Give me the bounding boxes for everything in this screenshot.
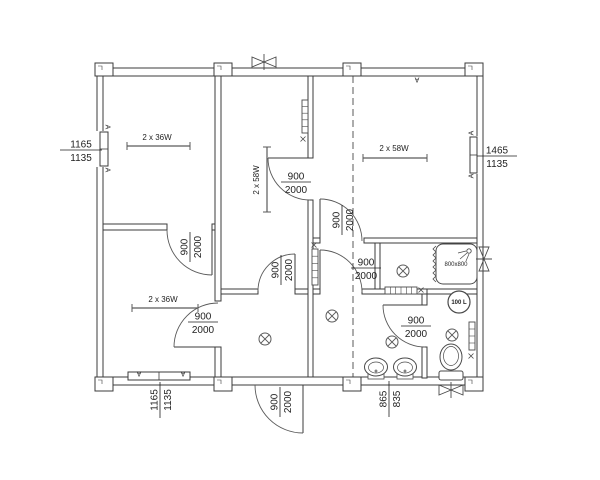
- door-size-label-numerator: 900: [271, 261, 282, 278]
- door-size-label-numerator: 900: [180, 238, 191, 255]
- exterior-wall: [97, 68, 483, 76]
- marker: A: [104, 168, 111, 173]
- corner-post: [95, 377, 113, 391]
- door-size-label-denominator: 2000: [283, 390, 294, 413]
- door-size-label-numerator: 900: [332, 211, 343, 228]
- door-size-label-denominator: 2000: [284, 258, 295, 281]
- ceiling-light-cross: [448, 331, 456, 339]
- dimension-label-numerator: 1465: [486, 146, 509, 157]
- windows: [96, 131, 478, 384]
- dimension-label: 865835: [379, 381, 404, 417]
- light-label: 2 x 58W: [252, 165, 261, 195]
- marker: A: [414, 76, 419, 83]
- interior-wall: [422, 294, 427, 305]
- door-size-label-numerator: 900: [288, 172, 305, 183]
- shower-head-icon: [467, 249, 471, 253]
- toilet-tank: [439, 371, 463, 380]
- ceiling-light-cross: [399, 267, 407, 275]
- corner-post: [465, 63, 483, 76]
- light-label-text: 2 x 36W: [148, 295, 178, 304]
- marker-letter: A: [136, 370, 141, 377]
- marker: A: [469, 173, 476, 178]
- marker-letter: A: [180, 370, 185, 377]
- door-size-label-numerator: 900: [358, 258, 375, 269]
- door-size-label: 9002000: [271, 255, 296, 285]
- door-size-label: 9002000: [281, 172, 311, 197]
- boiler-volume-label: 100 L: [451, 300, 467, 306]
- marker-letter: A: [469, 130, 476, 135]
- valve-mark-icon: [469, 354, 474, 359]
- ceiling-light-cross: [328, 312, 336, 320]
- interior-wall: [364, 238, 477, 243]
- light-label: 2 x 36W: [142, 133, 172, 142]
- shower-size-label: 800x800: [444, 262, 468, 268]
- door-size-label-numerator: 900: [195, 312, 212, 323]
- light-label-text: 2 x 36W: [142, 133, 172, 142]
- door-size-label: 9002000: [401, 316, 431, 341]
- marker-letter: A: [104, 168, 111, 173]
- interior-wall: [422, 347, 427, 378]
- door-size-label-numerator: 900: [408, 316, 425, 327]
- door-size-label-denominator: 2000: [285, 185, 308, 196]
- interior-wall: [103, 224, 167, 230]
- radiator: [312, 249, 318, 285]
- interior-wall: [215, 347, 221, 378]
- door-size-label-denominator: 2000: [405, 329, 428, 340]
- corner-post: [214, 377, 232, 391]
- corner-post: [95, 63, 113, 76]
- interior-wall: [313, 289, 320, 294]
- door-size-label-denominator: 2000: [192, 325, 215, 336]
- exterior-wall: [477, 68, 483, 385]
- interior-wall: [313, 238, 320, 243]
- interior-wall: [308, 76, 313, 158]
- radiator: [302, 100, 308, 133]
- ceiling-light-cross: [261, 335, 269, 343]
- door-size-label: 9002000: [188, 312, 218, 337]
- marker: A: [180, 370, 185, 377]
- door-size-label-numerator: 900: [270, 393, 281, 410]
- corner-post: [214, 63, 232, 76]
- marker: A: [469, 130, 476, 135]
- dimension-label-denominator: 1135: [163, 389, 174, 411]
- shower-curtain-zigzag: [433, 246, 436, 282]
- door-size-label: 9002000: [332, 205, 357, 235]
- light-label-text: 2 x 58W: [252, 165, 261, 195]
- corner-post: [343, 377, 361, 391]
- marker: A: [136, 370, 141, 377]
- corner-post: [465, 377, 483, 391]
- marker: A: [104, 125, 111, 130]
- light-label-text: 2 x 58W: [379, 144, 409, 153]
- walls: [95, 63, 483, 391]
- marker-letter: A: [104, 125, 111, 130]
- floor-plan-page: 9002000900200090020009002000900200090020…: [0, 0, 600, 480]
- interior-wall: [375, 243, 380, 292]
- ceiling-light-cross: [388, 338, 396, 346]
- interior-wall: [295, 289, 308, 294]
- light-label: 2 x 58W: [379, 144, 409, 153]
- marker-letter: A: [414, 76, 419, 83]
- corner-post: [343, 63, 361, 76]
- interior-wall: [215, 76, 221, 301]
- interior-wall: [212, 224, 215, 230]
- dimension-label-denominator: 1135: [486, 159, 508, 170]
- dimension-label: 11651135: [60, 140, 102, 165]
- interior-wall: [308, 200, 313, 377]
- dimension-label-numerator: 1165: [70, 140, 92, 151]
- dimension-label-denominator: 1135: [70, 153, 92, 164]
- door-size-label: 9002000: [180, 232, 205, 262]
- dimension-label-denominator: 835: [392, 390, 403, 407]
- dimension-label-numerator: 865: [379, 390, 390, 407]
- door-size-label-denominator: 2000: [355, 271, 378, 282]
- marker-letter: A: [469, 173, 476, 178]
- door-size-label-denominator: 2000: [193, 235, 204, 258]
- exterior-wall: [97, 68, 103, 385]
- dimension-label-numerator: 1165: [150, 389, 161, 411]
- light-label: 2 x 36W: [148, 295, 178, 304]
- interior-wall: [221, 289, 258, 294]
- valve-mark-icon: [301, 137, 306, 142]
- dimension-label: 11651135: [150, 382, 175, 418]
- floor-plan-svg: 9002000900200090020009002000900200090020…: [0, 0, 600, 480]
- door-size-label: 9002000: [270, 387, 295, 417]
- door-size-label-denominator: 2000: [345, 208, 356, 231]
